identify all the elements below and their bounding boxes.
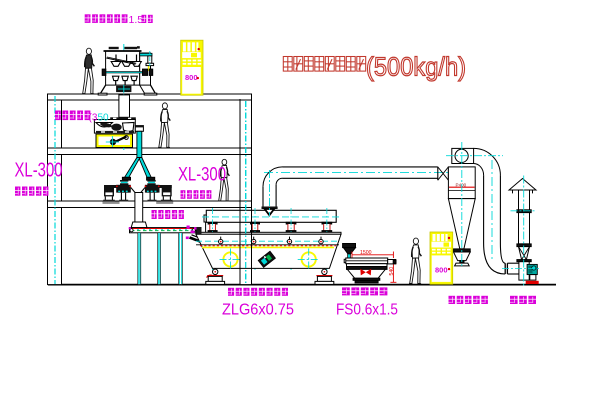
svg-text:50: 50 xyxy=(98,113,110,124)
svg-text:FS0.6x1.5: FS0.6x1.5 xyxy=(336,302,398,319)
svg-text:(500kg/h): (500kg/h) xyxy=(366,52,466,82)
svg-text:XL-300: XL-300 xyxy=(178,163,226,185)
svg-text:800: 800 xyxy=(435,266,448,275)
svg-text:540: 540 xyxy=(389,267,395,276)
svg-text:P400: P400 xyxy=(456,183,467,188)
svg-text:1.5: 1.5 xyxy=(129,14,144,26)
svg-text:800: 800 xyxy=(185,73,198,82)
svg-text:1500: 1500 xyxy=(360,250,372,256)
svg-text:XL-300: XL-300 xyxy=(15,159,63,182)
svg-text:(3: (3 xyxy=(89,113,98,124)
svg-text:ZLG6x0.75: ZLG6x0.75 xyxy=(222,302,294,319)
